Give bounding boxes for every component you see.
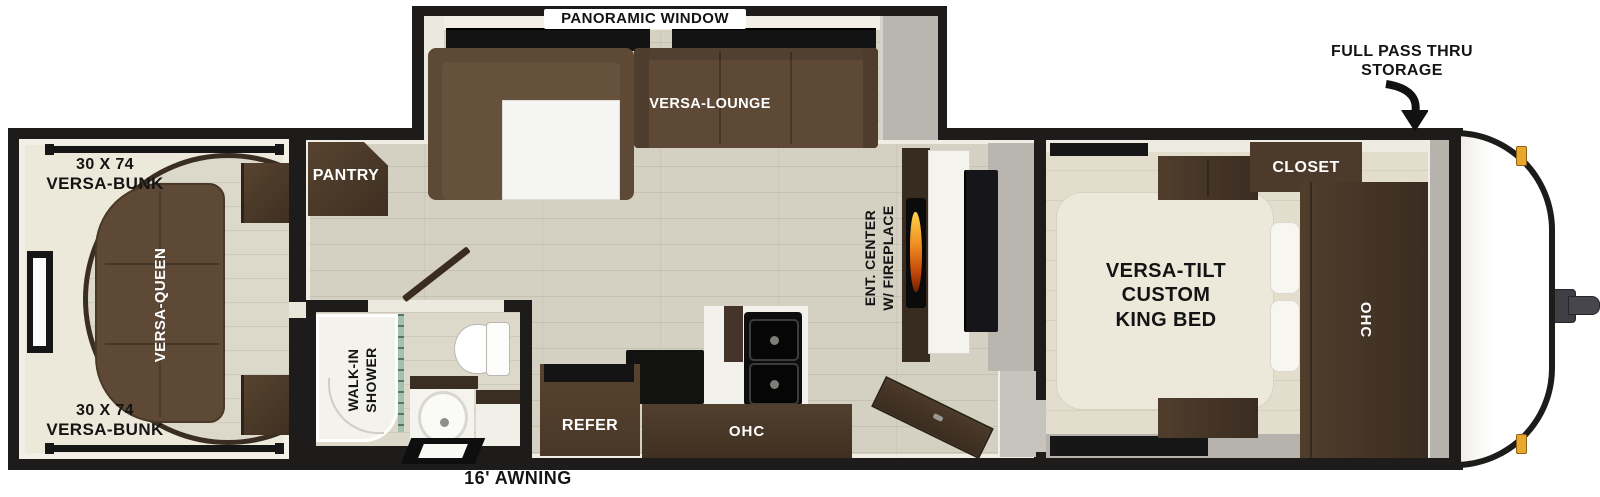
bedroom-window-bottom xyxy=(1050,436,1208,456)
bath-mat xyxy=(401,438,486,464)
sink-drain xyxy=(770,336,779,345)
bunk-bottom-name: VERSA-BUNK xyxy=(25,420,185,440)
awning-label: 16' AWNING xyxy=(436,468,600,490)
ent-center-cabinet-wood xyxy=(902,148,930,362)
bed-overhead-cabinet xyxy=(1158,156,1258,200)
pass-thru-bulkhead xyxy=(1428,140,1449,458)
bedroom-bottom-cabinet xyxy=(1158,398,1258,438)
rear-corner-cabinet-bottom xyxy=(241,375,289,435)
toilet-tank xyxy=(486,322,510,376)
rear-window-bottom xyxy=(52,445,278,452)
bedroom-door-gap xyxy=(1034,400,1046,452)
rear-window-top xyxy=(52,146,278,153)
rear-window-bottom-cap-left xyxy=(45,443,54,454)
walk-in-line1: WALK-IN xyxy=(345,328,363,432)
king-bed-line2: CUSTOM xyxy=(1057,283,1275,307)
kitchen-ohc-label: OHC xyxy=(642,423,852,441)
rear-bedroom-door-gap xyxy=(289,302,306,318)
sink-drain xyxy=(440,418,449,427)
fireplace xyxy=(906,198,926,308)
pillow xyxy=(1270,300,1300,372)
king-bed-label: VERSA-TILT CUSTOM KING BED xyxy=(1057,259,1275,332)
bath-mat-inner xyxy=(418,444,468,458)
rear-window-top-cap-right xyxy=(275,144,284,155)
storage-arrow-icon xyxy=(1378,80,1428,132)
full-pass-thru-line2: STORAGE xyxy=(1306,61,1498,80)
bunk-label-bottom: 30 X 74 VERSA-BUNK xyxy=(25,401,185,441)
ent-center-line2: W/ FIREPLACE xyxy=(879,180,897,336)
kitchen-sink xyxy=(744,312,802,406)
rear-corner-cabinet-top xyxy=(241,163,289,223)
sofa-cushion-seam xyxy=(790,52,792,144)
bedroom-ohc-label: OHC xyxy=(1354,285,1374,355)
master-bedroom: VERSA-TILT CUSTOM KING BED CLOSET OHC xyxy=(1046,140,1447,458)
versa-lounge-label: VERSA-LOUNGE xyxy=(646,96,774,113)
king-bed: VERSA-TILT CUSTOM KING BED xyxy=(1056,192,1274,410)
bunk-top-size: 30 X 74 xyxy=(25,155,185,174)
sink-basin-bottom xyxy=(749,363,799,405)
entry-door xyxy=(871,376,994,459)
hitch-coupler xyxy=(1568,296,1600,315)
sink-drain xyxy=(770,380,779,389)
wardrobe-seam xyxy=(1310,182,1312,458)
vanity-counter-edge xyxy=(410,376,478,389)
vanity-sink xyxy=(418,391,468,444)
bunk-top-name: VERSA-BUNK xyxy=(25,174,185,194)
bunk-bottom-size: 30 X 74 xyxy=(25,401,185,420)
kitchen-overhead-cabinet: OHC xyxy=(642,404,852,458)
shower-curtain xyxy=(398,314,404,432)
refer-label: REFER xyxy=(540,416,640,435)
bunk-label-top: 30 X 74 VERSA-BUNK xyxy=(25,155,185,195)
counter-wood-section xyxy=(724,306,743,362)
kitchen-counter xyxy=(704,306,808,406)
tv xyxy=(964,170,998,332)
rear-wall-window xyxy=(27,251,53,353)
panoramic-window-label: PANORAMIC WINDOW xyxy=(544,9,746,29)
floorplan-canvas: 30 X 74 VERSA-BUNK 30 X 74 VERSA-BUNK VE… xyxy=(0,0,1600,497)
marker-light-bottom xyxy=(1516,434,1527,454)
fireplace-flame xyxy=(910,212,922,292)
king-bed-line3: KING BED xyxy=(1057,308,1275,332)
rear-window-bottom-cap-right xyxy=(275,443,284,454)
sofa-armrest-right xyxy=(863,48,878,148)
cabinet-seam xyxy=(1207,159,1209,197)
entry-alcove-wall xyxy=(998,371,1036,457)
closet-label: CLOSET xyxy=(1250,158,1362,177)
full-pass-thru-label: FULL PASS THRU STORAGE xyxy=(1306,42,1498,80)
pillow xyxy=(1270,222,1300,294)
lounge-table xyxy=(502,100,620,200)
bathroom-door-gap xyxy=(368,300,504,312)
refrigerator-top xyxy=(544,364,634,382)
versa-queen-label: VERSA-QUEEN xyxy=(152,225,172,385)
full-pass-thru-line1: FULL PASS THRU xyxy=(1306,42,1498,61)
king-bed-line1: VERSA-TILT xyxy=(1057,259,1275,283)
rear-wall-window-glass xyxy=(33,258,46,346)
bath-counter-edge-right xyxy=(476,390,520,404)
front-nose xyxy=(1455,130,1555,468)
sink-basin-top xyxy=(749,319,799,361)
sofa-backrest xyxy=(649,48,863,60)
walk-in-line2: SHOWER xyxy=(363,328,381,432)
door-handle xyxy=(932,413,943,422)
marker-light-top xyxy=(1516,146,1527,166)
ent-center-label: ENT. CENTER W/ FIREPLACE xyxy=(861,180,899,336)
pantry-label: PANTRY xyxy=(308,166,384,185)
rear-window-top-cap-left xyxy=(45,144,54,155)
pantry-cabinet: PANTRY xyxy=(308,142,388,216)
refrigerator: REFER xyxy=(540,364,640,456)
walk-in-shower-label: WALK-IN SHOWER xyxy=(345,328,381,432)
slide-right-wall xyxy=(880,16,938,152)
ent-center-line1: ENT. CENTER xyxy=(861,180,879,336)
bedroom-window-top xyxy=(1050,143,1148,156)
wardrobe-ohc: OHC xyxy=(1300,182,1428,458)
